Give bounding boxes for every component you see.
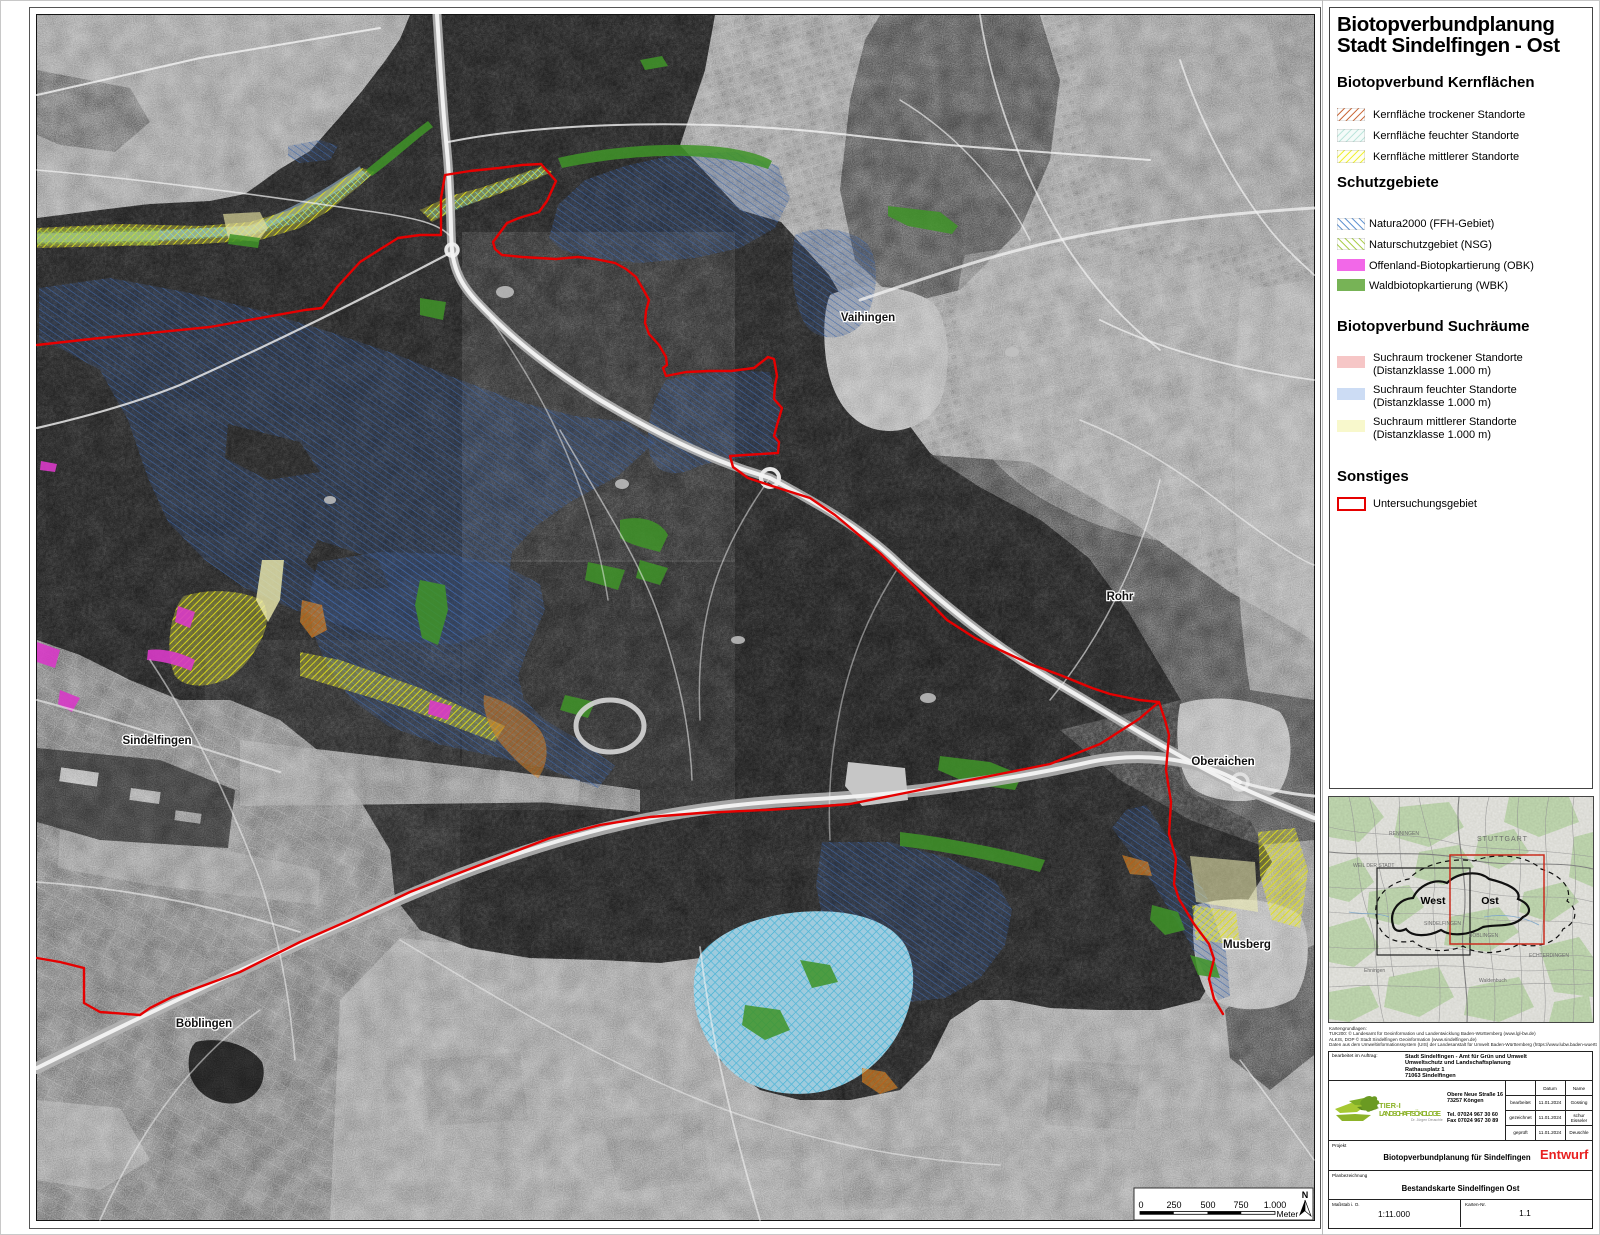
svg-text:0: 0 xyxy=(1138,1200,1143,1210)
svg-text:250: 250 xyxy=(1166,1200,1181,1210)
svg-text:Musberg: Musberg xyxy=(1223,939,1271,951)
svg-text:750: 750 xyxy=(1233,1200,1248,1210)
svg-text:LANDSCHAFTSÖKOLOGIE: LANDSCHAFTSÖKOLOGIE xyxy=(1379,1109,1441,1118)
svg-text:500: 500 xyxy=(1200,1200,1215,1210)
svg-text:Oberaichen: Oberaichen xyxy=(1191,756,1254,768)
svg-text:Dr. Jürgen Deuschle: Dr. Jürgen Deuschle xyxy=(1411,1118,1443,1122)
svg-text:N: N xyxy=(1302,1190,1309,1200)
svg-text:Sindelfingen: Sindelfingen xyxy=(123,735,192,747)
svg-text:Rohr: Rohr xyxy=(1107,591,1134,603)
svg-text:Meter: Meter xyxy=(1277,1209,1299,1219)
svg-text:Böblingen: Böblingen xyxy=(176,1018,232,1030)
svg-text:Vaihingen: Vaihingen xyxy=(841,312,895,324)
